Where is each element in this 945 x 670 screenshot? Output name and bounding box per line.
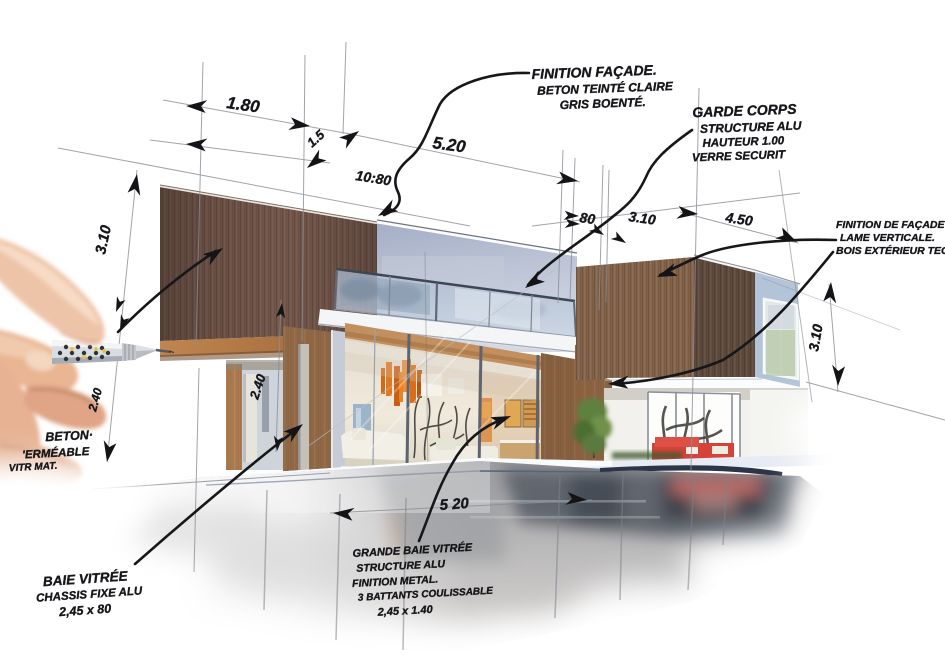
svg-text:FINITION DE FAÇADE B: FINITION DE FAÇADE B	[836, 219, 945, 231]
svg-text:BOIS EXTÉRIEUR TECK.: BOIS EXTÉRIEUR TECK.	[836, 244, 945, 257]
svg-text:BETON·: BETON·	[45, 428, 93, 444]
svg-text:80: 80	[579, 209, 597, 227]
svg-text:5 20: 5 20	[439, 495, 470, 514]
svg-text:LAME VERTICALE.: LAME VERTICALE.	[840, 232, 935, 244]
svg-text:GRIS BOENTÉ.: GRIS BOENTÉ.	[559, 94, 645, 112]
